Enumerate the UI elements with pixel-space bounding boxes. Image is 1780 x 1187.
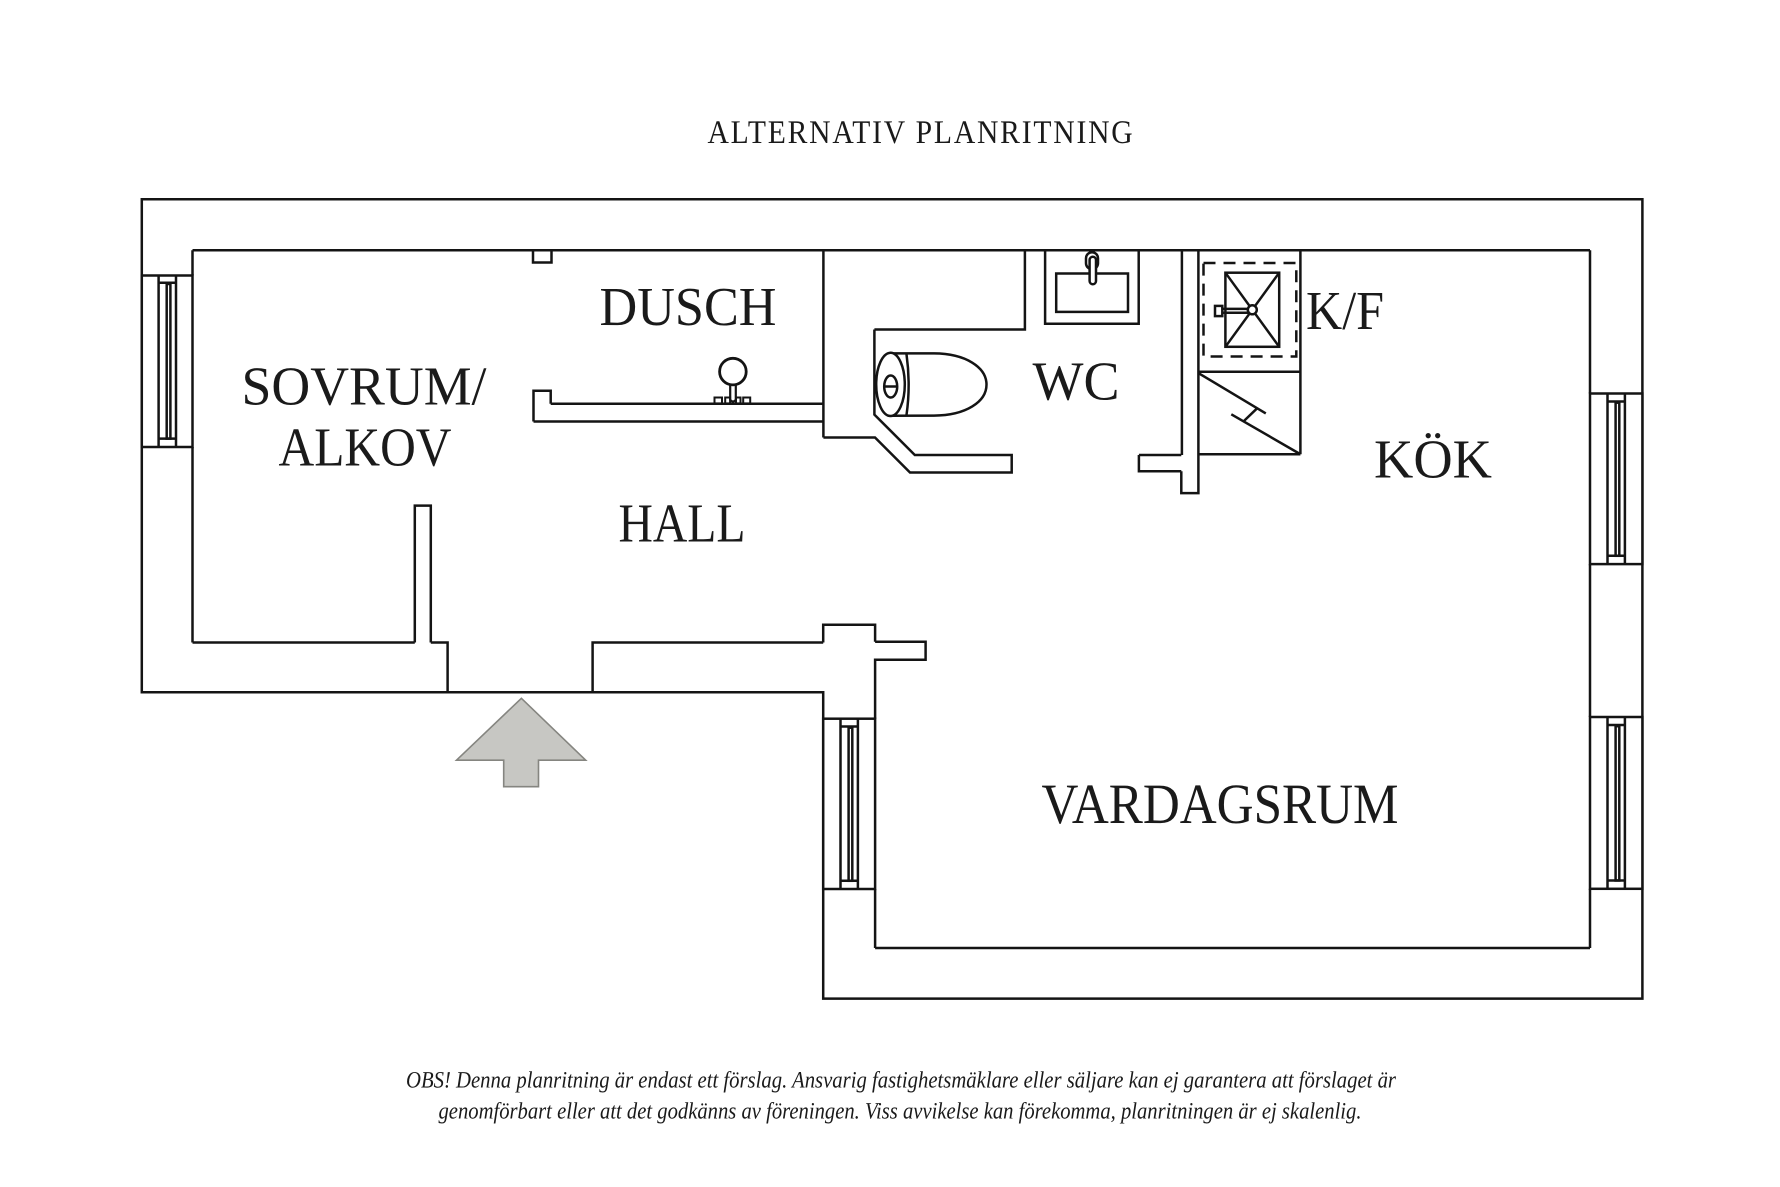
svg-text:KÖK: KÖK [1374,428,1492,489]
svg-text:ALTERNATIV PLANRITNING: ALTERNATIV PLANRITNING [708,115,1135,151]
svg-text:WC: WC [1033,351,1120,412]
svg-text:HALL: HALL [619,493,746,554]
svg-text:K/F: K/F [1306,280,1384,341]
svg-text:genomförbart eller att det god: genomförbart eller att det godkänns av f… [439,1099,1362,1125]
svg-text:VARDAGSRUM: VARDAGSRUM [1042,773,1399,836]
svg-text:DUSCH: DUSCH [600,276,777,337]
svg-text:ALKOV: ALKOV [279,416,452,477]
svg-text:OBS! Denna planritning är enda: OBS! Denna planritning är endast ett för… [406,1068,1397,1094]
svg-text:SOVRUM/: SOVRUM/ [242,356,488,417]
